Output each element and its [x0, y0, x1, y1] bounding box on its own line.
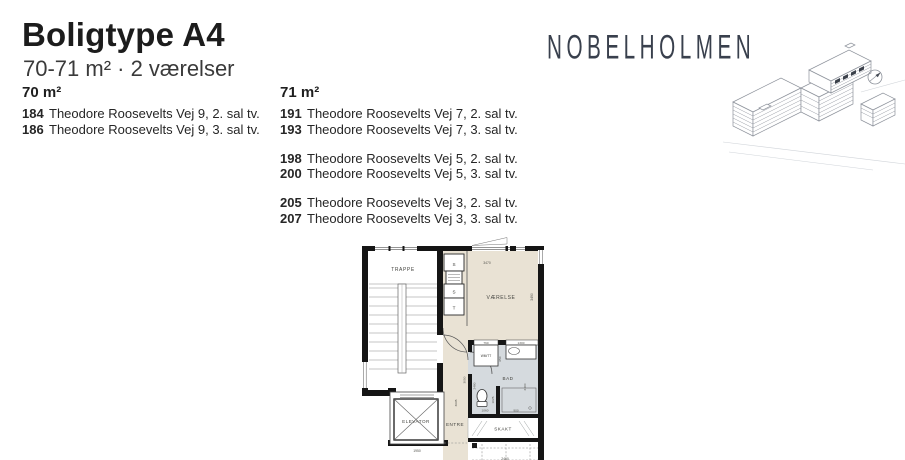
listing-group: 191Theodore Roosevelts Vej 7, 2. sal tv.… [280, 106, 518, 138]
toilet-tank [477, 402, 487, 407]
building-illustration [723, 30, 905, 172]
section-marker [472, 443, 477, 448]
listing-row: 200Theodore Roosevelts Vej 5, 3. sal tv. [280, 166, 518, 182]
apartment-number: 186 [22, 122, 49, 138]
page-title: Boligtype A4 [22, 16, 225, 54]
dim-shower: 900 [513, 409, 518, 413]
dim-sink-width: 1300 [518, 341, 525, 345]
listing-group: 205Theodore Roosevelts Vej 3, 2. sal tv.… [280, 195, 518, 227]
closet-s-label: S [452, 290, 455, 295]
elevator [390, 392, 444, 444]
label-trappe: TRAPPE [391, 267, 415, 273]
listing-row: 193Theodore Roosevelts Vej 7, 3. sal tv. [280, 122, 518, 138]
dim-entre-height: 3695 [454, 399, 458, 406]
apartment-number: 191 [280, 106, 307, 122]
apartment-address: Theodore Roosevelts Vej 9, 3. sal tv. [49, 122, 260, 137]
listing-row: 198Theodore Roosevelts Vej 5, 2. sal tv. [280, 151, 518, 167]
building-east-block [861, 93, 895, 126]
label-skakt: SKAKT [494, 427, 512, 432]
label-elevator: ELEVATOR [402, 419, 430, 424]
floorplan-drawing: S S T [360, 236, 545, 460]
dim-bad-right: 2400 [523, 383, 527, 390]
dim-vaerelse-width: 3470 [483, 261, 491, 265]
dim-shower-depth: 1025 [491, 396, 495, 403]
apartment-address: Theodore Roosevelts Vej 7, 3. sal tv. [307, 122, 518, 137]
listings-column-71: 71 m² 191Theodore Roosevelts Vej 7, 2. s… [280, 84, 518, 240]
closet-s-label: S [452, 262, 455, 267]
listing-row: 207Theodore Roosevelts Vej 3, 3. sal tv. [280, 211, 518, 227]
listing-row: 184Theodore Roosevelts Vej 9, 2. sal tv. [22, 106, 260, 122]
listings-column-70: 70 m² 184Theodore Roosevelts Vej 9, 2. s… [22, 84, 260, 151]
listing-row: 191Theodore Roosevelts Vej 7, 2. sal tv. [280, 106, 518, 122]
brochure-page: Boligtype A4 70-71 m² · 2 værelser NOBEL… [0, 0, 905, 460]
column-header: 70 m² [22, 84, 260, 101]
closets: S S T [444, 254, 464, 315]
closet-t-label: T [453, 306, 456, 311]
apartment-number: 198 [280, 151, 307, 167]
label-entre: ENTRE [446, 422, 464, 427]
apartment-address: Theodore Roosevelts Vej 3, 3. sal tv. [307, 211, 518, 226]
apartment-address: Theodore Roosevelts Vej 3, 2. sal tv. [307, 195, 518, 210]
apartment-address: Theodore Roosevelts Vej 9, 2. sal tv. [49, 106, 260, 121]
compass-icon [868, 70, 882, 84]
apartment-address: Theodore Roosevelts Vej 5, 3. sal tv. [307, 166, 518, 181]
toilet [477, 390, 487, 403]
dim-entre-height2: 3050 [463, 376, 467, 383]
building-west-wing [733, 78, 801, 136]
page-subtitle: 70-71 m² · 2 værelser [23, 56, 235, 82]
dim-wm-width: 760 [483, 341, 488, 345]
dim-elevator-width: 1950 [413, 449, 421, 453]
dim-bad-left: 2480 [473, 382, 477, 389]
listing-group: 184Theodore Roosevelts Vej 9, 2. sal tv.… [22, 106, 260, 138]
sink-counter [506, 345, 536, 359]
apartment-number: 193 [280, 122, 307, 138]
apartment-address: Theodore Roosevelts Vej 7, 2. sal tv. [307, 106, 518, 121]
window-opening-flag [472, 238, 507, 246]
listing-row: 205Theodore Roosevelts Vej 3, 2. sal tv. [280, 195, 518, 211]
apartment-number: 184 [22, 106, 49, 122]
apartment-number: 205 [280, 195, 307, 211]
dim-toilet: 1060 [482, 409, 489, 413]
dim-wm-depth: 650 [498, 356, 502, 361]
dim-vaerelse-height: 3490 [530, 293, 534, 301]
apartment-address: Theodore Roosevelts Vej 5, 2. sal tv. [307, 151, 518, 166]
listing-group: 198Theodore Roosevelts Vej 5, 2. sal tv.… [280, 151, 518, 183]
label-vaerelse: VÆRELSE [487, 295, 516, 301]
label-wm-tt: WM/TT [481, 354, 491, 358]
listing-row: 186Theodore Roosevelts Vej 9, 3. sal tv. [22, 122, 260, 138]
column-header: 71 m² [280, 84, 518, 101]
apartment-number: 207 [280, 211, 307, 227]
label-bad: BAD [503, 376, 514, 381]
apartment-number: 200 [280, 166, 307, 182]
